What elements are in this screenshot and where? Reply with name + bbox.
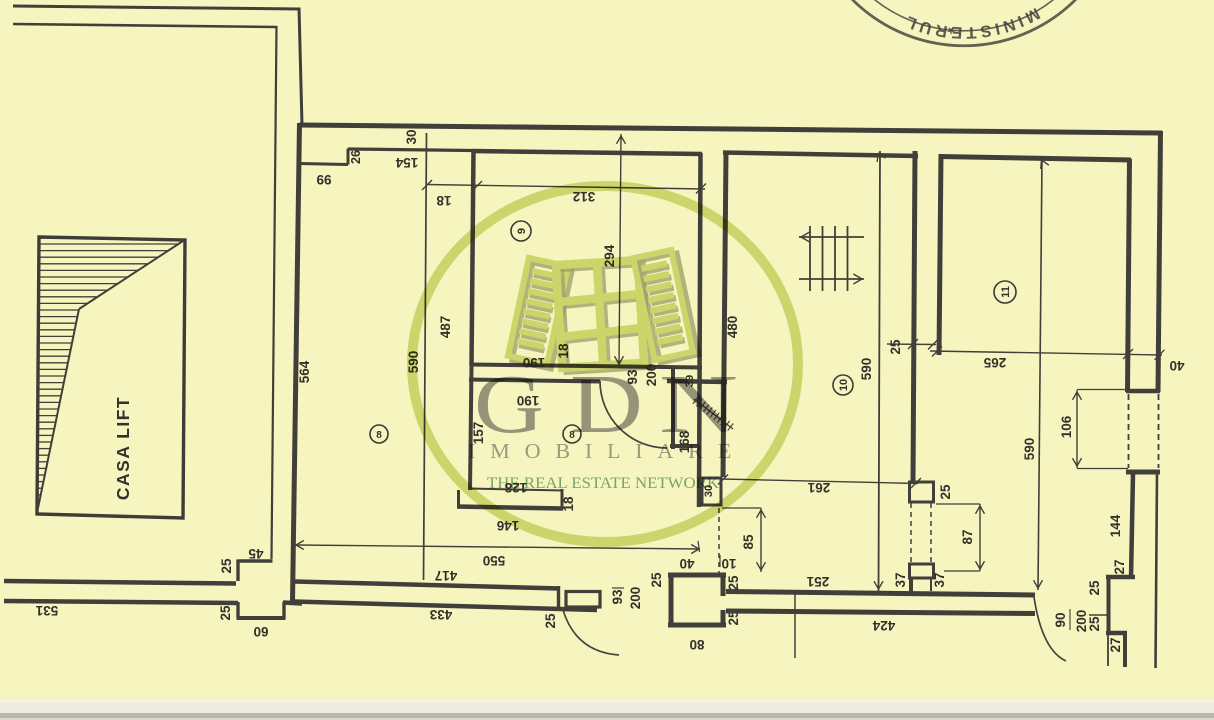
- svg-text:25: 25: [218, 605, 233, 621]
- svg-text:18: 18: [436, 193, 452, 208]
- svg-text:200: 200: [628, 587, 643, 610]
- svg-text:251: 251: [806, 574, 829, 589]
- svg-text:417: 417: [435, 568, 458, 583]
- svg-text:N: N: [659, 358, 738, 451]
- svg-text:60: 60: [253, 624, 268, 639]
- svg-text:590: 590: [1022, 438, 1037, 461]
- svg-text:564: 564: [297, 360, 312, 383]
- svg-text:80: 80: [689, 637, 704, 652]
- svg-text:★: ★: [946, 24, 956, 36]
- svg-text:37: 37: [893, 572, 908, 587]
- svg-text:25: 25: [726, 575, 741, 591]
- svg-text:9: 9: [516, 228, 528, 234]
- svg-text:11: 11: [1000, 286, 1012, 298]
- svg-text:45: 45: [248, 546, 264, 561]
- svg-text:D: D: [570, 358, 643, 451]
- svg-text:25: 25: [649, 572, 664, 588]
- svg-text:433: 433: [429, 607, 452, 622]
- svg-text:590: 590: [859, 358, 874, 381]
- svg-text:25: 25: [888, 339, 903, 355]
- svg-text:10: 10: [838, 379, 850, 391]
- svg-text:99: 99: [316, 172, 331, 187]
- svg-text:480: 480: [725, 316, 740, 339]
- svg-text:26: 26: [349, 150, 363, 164]
- svg-text:424: 424: [872, 618, 895, 633]
- svg-text:CASA LIFT: CASA LIFT: [113, 396, 133, 500]
- svg-text:40: 40: [1169, 358, 1184, 373]
- svg-text:18: 18: [561, 496, 576, 512]
- svg-text:10: 10: [721, 556, 736, 571]
- svg-text:27: 27: [1108, 637, 1123, 652]
- svg-text:531: 531: [35, 603, 58, 618]
- svg-text:144: 144: [1108, 514, 1123, 537]
- svg-text:27: 27: [1112, 559, 1127, 574]
- svg-text:G: G: [474, 358, 544, 451]
- svg-text:106: 106: [1059, 415, 1074, 438]
- svg-text:THE REAL ESTATE NETWORK: THE REAL ESTATE NETWORK: [487, 475, 720, 492]
- svg-text:93: 93: [610, 589, 625, 605]
- svg-text:IMOBILIARE: IMOBILIARE: [468, 439, 746, 463]
- svg-text:550: 550: [483, 553, 506, 568]
- svg-text:37: 37: [932, 572, 947, 587]
- svg-text:25: 25: [1087, 580, 1102, 596]
- svg-text:85: 85: [741, 534, 756, 550]
- svg-text:8: 8: [376, 430, 382, 441]
- svg-text:261: 261: [807, 480, 830, 495]
- svg-text:154: 154: [395, 155, 418, 170]
- svg-text:40: 40: [679, 556, 694, 571]
- svg-text:90: 90: [1053, 612, 1068, 627]
- svg-text:265: 265: [983, 355, 1006, 370]
- svg-text:87: 87: [960, 529, 975, 544]
- svg-text:25: 25: [1087, 616, 1102, 632]
- svg-text:487: 487: [438, 316, 453, 339]
- svg-text:30: 30: [404, 129, 419, 144]
- svg-text:25: 25: [219, 558, 234, 574]
- svg-text:25: 25: [543, 613, 558, 629]
- svg-text:25: 25: [938, 484, 953, 500]
